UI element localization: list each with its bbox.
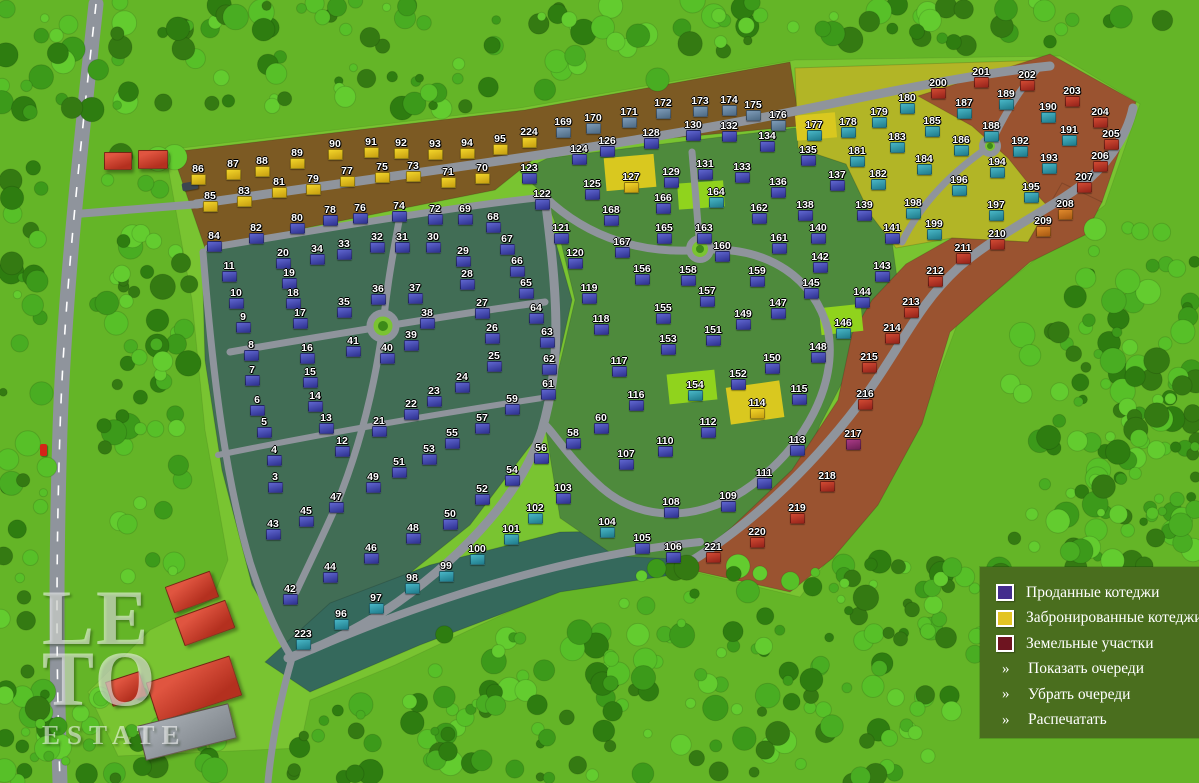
plot-house-116[interactable]: [629, 400, 644, 411]
plot-house-211[interactable]: [956, 253, 971, 264]
plot-house-159[interactable]: [750, 276, 765, 287]
plot-number-91[interactable]: 91: [365, 137, 377, 148]
plot-number-46[interactable]: 46: [365, 543, 377, 554]
plot-number-41[interactable]: 41: [347, 336, 359, 347]
plot-house-14[interactable]: [308, 401, 323, 412]
plot-number-162[interactable]: 162: [750, 203, 768, 214]
plot-number-31[interactable]: 31: [396, 232, 408, 243]
plot-number-24[interactable]: 24: [456, 372, 468, 383]
plot-house-162[interactable]: [752, 213, 767, 224]
plot-house-111[interactable]: [757, 478, 772, 489]
plot-number-187[interactable]: 187: [955, 98, 973, 109]
plot-number-32[interactable]: 32: [371, 232, 383, 243]
plot-number-9[interactable]: 9: [240, 312, 246, 323]
plot-house-110[interactable]: [658, 446, 673, 457]
plot-number-114[interactable]: 114: [749, 398, 766, 409]
plot-house-22[interactable]: [404, 409, 419, 420]
plot-number-105[interactable]: 105: [633, 533, 651, 544]
plot-number-71[interactable]: 71: [442, 167, 454, 178]
plot-house-158[interactable]: [681, 275, 696, 286]
plot-number-93[interactable]: 93: [429, 139, 441, 150]
plot-number-13[interactable]: 13: [320, 413, 332, 424]
plot-number-25[interactable]: 25: [488, 351, 500, 362]
plot-house-166[interactable]: [656, 203, 671, 214]
plot-house-73[interactable]: [406, 171, 421, 182]
plot-number-6[interactable]: 6: [254, 395, 260, 406]
plot-number-99[interactable]: 99: [440, 561, 452, 572]
plot-house-33[interactable]: [337, 249, 352, 260]
plot-number-132[interactable]: 132: [720, 121, 738, 132]
hide-queues-button[interactable]: » Убрать очереди: [996, 682, 1199, 708]
plot-number-81[interactable]: 81: [273, 177, 285, 188]
plot-house-58[interactable]: [566, 438, 581, 449]
plot-number-192[interactable]: 192: [1011, 136, 1029, 147]
plot-house-75[interactable]: [375, 172, 390, 183]
plot-number-36[interactable]: 36: [372, 284, 384, 295]
plot-number-197[interactable]: 197: [987, 200, 1005, 211]
plot-number-76[interactable]: 76: [354, 203, 366, 214]
plot-house-32[interactable]: [370, 242, 385, 253]
plot-number-45[interactable]: 45: [300, 506, 312, 517]
plot-house-126[interactable]: [600, 146, 615, 157]
plot-house-105[interactable]: [635, 543, 650, 554]
plot-number-223[interactable]: 223: [294, 629, 312, 640]
plot-number-194[interactable]: 194: [988, 157, 1006, 168]
plot-house-188[interactable]: [984, 131, 999, 142]
plot-house-215[interactable]: [862, 362, 877, 373]
plot-house-95[interactable]: [493, 144, 508, 155]
plot-house-157[interactable]: [700, 296, 715, 307]
plot-house-91[interactable]: [364, 147, 379, 158]
plot-house-184[interactable]: [917, 164, 932, 175]
plot-house-131[interactable]: [698, 169, 713, 180]
plot-house-170[interactable]: [586, 123, 601, 134]
plot-house-164[interactable]: [709, 197, 724, 208]
plot-number-205[interactable]: 205: [1102, 129, 1120, 140]
plot-number-51[interactable]: 51: [393, 457, 405, 468]
plot-number-175[interactable]: 175: [744, 100, 762, 111]
plot-number-163[interactable]: 163: [695, 223, 713, 234]
plot-number-101[interactable]: 101: [502, 524, 520, 535]
plot-number-90[interactable]: 90: [329, 139, 341, 150]
plot-number-49[interactable]: 49: [367, 472, 379, 483]
plot-number-186[interactable]: 186: [952, 135, 970, 146]
plot-number-60[interactable]: 60: [595, 413, 607, 424]
plot-number-215[interactable]: 215: [860, 352, 878, 363]
plot-house-127[interactable]: [624, 182, 639, 193]
plot-number-73[interactable]: 73: [407, 161, 419, 172]
plot-house-150[interactable]: [765, 363, 780, 374]
plot-number-38[interactable]: 38: [421, 308, 433, 319]
plot-house-24[interactable]: [455, 382, 470, 393]
plot-house-153[interactable]: [661, 344, 676, 355]
plot-house-100[interactable]: [470, 554, 485, 565]
plot-house-115[interactable]: [792, 394, 807, 405]
plot-house-120[interactable]: [568, 258, 583, 269]
plot-number-10[interactable]: 10: [230, 288, 242, 299]
plot-house-50[interactable]: [443, 519, 458, 530]
plot-number-62[interactable]: 62: [543, 354, 555, 365]
plot-number-224[interactable]: 224: [520, 127, 538, 138]
plot-number-176[interactable]: 176: [769, 110, 787, 121]
plot-number-188[interactable]: 188: [982, 121, 1000, 132]
plot-house-8[interactable]: [244, 350, 259, 361]
plot-house-132[interactable]: [722, 131, 737, 142]
plot-house-47[interactable]: [329, 502, 344, 513]
plot-house-216[interactable]: [858, 399, 873, 410]
plot-number-94[interactable]: 94: [461, 138, 473, 149]
plot-house-6[interactable]: [250, 405, 265, 416]
plot-number-22[interactable]: 22: [405, 399, 417, 410]
plot-number-151[interactable]: 151: [704, 325, 722, 336]
plot-house-55[interactable]: [445, 438, 460, 449]
plot-number-125[interactable]: 125: [583, 179, 601, 190]
plot-number-219[interactable]: 219: [788, 503, 806, 514]
plot-house-61[interactable]: [541, 389, 556, 400]
plot-number-100[interactable]: 100: [468, 544, 486, 555]
plot-number-177[interactable]: 177: [805, 120, 823, 131]
plot-number-86[interactable]: 86: [192, 164, 204, 175]
plot-number-201[interactable]: 201: [972, 67, 990, 78]
plot-number-42[interactable]: 42: [284, 584, 296, 595]
plot-house-28[interactable]: [460, 279, 475, 290]
plot-number-37[interactable]: 37: [409, 283, 421, 294]
plot-house-203[interactable]: [1065, 96, 1080, 107]
plot-number-171[interactable]: 171: [620, 107, 638, 118]
plot-number-28[interactable]: 28: [461, 269, 473, 280]
plot-number-211[interactable]: 211: [955, 243, 972, 254]
plot-number-14[interactable]: 14: [309, 391, 321, 402]
plot-number-118[interactable]: 118: [593, 314, 610, 325]
plot-number-220[interactable]: 220: [748, 527, 766, 538]
plot-number-54[interactable]: 54: [506, 465, 518, 476]
plot-number-170[interactable]: 170: [584, 113, 602, 124]
plot-number-74[interactable]: 74: [393, 201, 405, 212]
plot-house-77[interactable]: [340, 176, 355, 187]
plot-number-128[interactable]: 128: [642, 128, 660, 139]
plot-number-124[interactable]: 124: [570, 144, 588, 155]
plot-house-224[interactable]: [522, 137, 537, 148]
plot-house-122[interactable]: [535, 199, 550, 210]
plot-house-199[interactable]: [927, 229, 942, 240]
plot-house-89[interactable]: [290, 158, 305, 169]
plot-number-141[interactable]: 141: [883, 223, 901, 234]
plot-house-169[interactable]: [556, 127, 571, 138]
plot-house-174[interactable]: [722, 105, 737, 116]
plot-number-57[interactable]: 57: [476, 413, 488, 424]
plot-number-7[interactable]: 7: [249, 365, 255, 376]
plot-number-5[interactable]: 5: [261, 417, 267, 428]
plot-number-180[interactable]: 180: [898, 93, 916, 104]
plot-house-151[interactable]: [706, 335, 721, 346]
plot-house-57[interactable]: [475, 423, 490, 434]
plot-number-66[interactable]: 66: [511, 256, 523, 267]
plot-house-205[interactable]: [1104, 139, 1119, 150]
plot-house-60[interactable]: [594, 423, 609, 434]
plot-house-112[interactable]: [701, 427, 716, 438]
plot-number-39[interactable]: 39: [405, 330, 417, 341]
plot-house-72[interactable]: [428, 214, 443, 225]
plot-house-139[interactable]: [857, 210, 872, 221]
plot-number-26[interactable]: 26: [486, 323, 498, 334]
plot-house-193[interactable]: [1042, 163, 1057, 174]
plot-number-182[interactable]: 182: [869, 169, 887, 180]
plot-number-95[interactable]: 95: [494, 134, 506, 145]
plot-house-106[interactable]: [666, 552, 681, 563]
plot-number-172[interactable]: 172: [654, 98, 672, 109]
plot-number-89[interactable]: 89: [291, 148, 303, 159]
plot-house-136[interactable]: [771, 187, 786, 198]
plot-house-108[interactable]: [664, 507, 679, 518]
plot-house-219[interactable]: [790, 513, 805, 524]
plot-number-208[interactable]: 208: [1056, 199, 1074, 210]
plot-number-50[interactable]: 50: [444, 509, 456, 520]
plot-number-106[interactable]: 106: [664, 542, 682, 553]
plot-number-123[interactable]: 123: [520, 163, 538, 174]
plot-number-131[interactable]: 131: [696, 159, 714, 170]
plot-number-168[interactable]: 168: [602, 205, 620, 216]
plot-number-72[interactable]: 72: [429, 204, 441, 215]
plot-house-134[interactable]: [760, 141, 775, 152]
plot-house-154[interactable]: [688, 390, 703, 401]
plot-number-65[interactable]: 65: [520, 278, 532, 289]
plot-number-207[interactable]: 207: [1075, 172, 1093, 183]
plot-number-161[interactable]: 161: [770, 233, 788, 244]
plot-number-191[interactable]: 191: [1060, 125, 1078, 136]
plot-house-177[interactable]: [807, 130, 822, 141]
plot-house-51[interactable]: [392, 467, 407, 478]
plot-house-172[interactable]: [656, 108, 671, 119]
plot-number-195[interactable]: 195: [1022, 182, 1040, 193]
plot-house-190[interactable]: [1041, 112, 1056, 123]
plot-number-104[interactable]: 104: [598, 517, 616, 528]
plot-house-189[interactable]: [999, 99, 1014, 110]
plot-number-140[interactable]: 140: [809, 223, 827, 234]
plot-house-38[interactable]: [420, 318, 435, 329]
plot-house-29[interactable]: [456, 256, 471, 267]
plot-house-68[interactable]: [486, 222, 501, 233]
plot-house-67[interactable]: [500, 244, 515, 255]
plot-house-36[interactable]: [371, 294, 386, 305]
plot-number-119[interactable]: 119: [581, 283, 598, 294]
plot-number-204[interactable]: 204: [1091, 107, 1109, 118]
plot-house-45[interactable]: [299, 516, 314, 527]
plot-number-80[interactable]: 80: [291, 213, 303, 224]
plot-house-201[interactable]: [974, 77, 989, 88]
plot-house-171[interactable]: [622, 117, 637, 128]
plot-number-193[interactable]: 193: [1040, 153, 1058, 164]
plot-house-178[interactable]: [841, 127, 856, 138]
plot-number-214[interactable]: 214: [883, 323, 901, 334]
plot-house-209[interactable]: [1036, 226, 1051, 237]
plot-house-101[interactable]: [504, 534, 519, 545]
plot-number-133[interactable]: 133: [733, 162, 751, 173]
plot-number-145[interactable]: 145: [802, 278, 820, 289]
plot-number-146[interactable]: 146: [834, 318, 852, 329]
plot-house-97[interactable]: [369, 603, 384, 614]
plot-number-157[interactable]: 157: [698, 286, 716, 297]
plot-house-25[interactable]: [487, 361, 502, 372]
plot-house-26[interactable]: [485, 333, 500, 344]
plot-number-87[interactable]: 87: [227, 159, 239, 170]
plot-house-59[interactable]: [505, 404, 520, 415]
plot-number-16[interactable]: 16: [301, 343, 313, 354]
plot-house-64[interactable]: [529, 313, 544, 324]
plot-number-82[interactable]: 82: [250, 223, 262, 234]
plot-number-158[interactable]: 158: [679, 265, 697, 276]
plot-house-15[interactable]: [303, 377, 318, 388]
plot-house-192[interactable]: [1013, 146, 1028, 157]
plot-house-186[interactable]: [954, 145, 969, 156]
plot-number-135[interactable]: 135: [799, 145, 817, 156]
plot-number-189[interactable]: 189: [997, 89, 1015, 100]
plot-house-93[interactable]: [428, 149, 443, 160]
plot-number-68[interactable]: 68: [487, 212, 499, 223]
plot-number-218[interactable]: 218: [818, 471, 836, 482]
plot-number-109[interactable]: 109: [719, 491, 737, 502]
plot-number-111[interactable]: 111: [756, 468, 772, 479]
print-button[interactable]: » Распечатать: [996, 708, 1199, 734]
plot-number-174[interactable]: 174: [720, 95, 738, 106]
plot-house-167[interactable]: [615, 247, 630, 258]
plot-number-153[interactable]: 153: [659, 334, 677, 345]
plot-house-161[interactable]: [772, 243, 787, 254]
plot-house-137[interactable]: [830, 180, 845, 191]
plot-house-194[interactable]: [990, 167, 1005, 178]
plot-number-27[interactable]: 27: [476, 298, 488, 309]
plot-number-206[interactable]: 206: [1091, 151, 1109, 162]
plot-house-74[interactable]: [392, 211, 407, 222]
plot-house-81[interactable]: [272, 187, 287, 198]
plot-house-145[interactable]: [804, 288, 819, 299]
plot-number-3[interactable]: 3: [272, 472, 278, 483]
plot-house-53[interactable]: [422, 454, 437, 465]
plot-house-133[interactable]: [735, 172, 750, 183]
plot-house-3[interactable]: [268, 482, 283, 493]
plot-house-92[interactable]: [394, 148, 409, 159]
plot-number-143[interactable]: 143: [873, 261, 891, 272]
plot-house-123[interactable]: [522, 173, 537, 184]
plot-number-115[interactable]: 115: [791, 384, 808, 395]
plot-house-87[interactable]: [226, 169, 241, 180]
plot-number-181[interactable]: 181: [848, 146, 866, 157]
plot-number-190[interactable]: 190: [1039, 102, 1057, 113]
plot-number-21[interactable]: 21: [373, 416, 385, 427]
plot-house-175[interactable]: [746, 110, 761, 121]
plot-house-109[interactable]: [721, 501, 736, 512]
plot-number-127[interactable]: 127: [622, 172, 640, 183]
plot-house-135[interactable]: [801, 155, 816, 166]
plot-number-167[interactable]: 167: [613, 237, 631, 248]
plot-number-103[interactable]: 103: [554, 483, 572, 494]
plot-number-61[interactable]: 61: [542, 379, 554, 390]
plot-house-83[interactable]: [237, 196, 252, 207]
plot-house-82[interactable]: [249, 233, 264, 244]
plot-number-213[interactable]: 213: [902, 297, 920, 308]
plot-number-221[interactable]: 221: [704, 542, 722, 553]
plot-house-179[interactable]: [872, 117, 887, 128]
plot-house-66[interactable]: [510, 266, 525, 277]
plot-number-63[interactable]: 63: [541, 327, 553, 338]
plot-number-185[interactable]: 185: [923, 116, 941, 127]
plot-house-31[interactable]: [395, 242, 410, 253]
plot-house-10[interactable]: [229, 298, 244, 309]
plot-number-110[interactable]: 110: [657, 436, 674, 447]
plot-house-121[interactable]: [554, 233, 569, 244]
plot-house-48[interactable]: [406, 533, 421, 544]
plot-number-179[interactable]: 179: [870, 107, 888, 118]
plot-house-70[interactable]: [475, 173, 490, 184]
plot-number-70[interactable]: 70: [476, 163, 488, 174]
plot-house-138[interactable]: [798, 210, 813, 221]
plot-house-5[interactable]: [257, 427, 272, 438]
plot-number-216[interactable]: 216: [856, 389, 874, 400]
plot-house-223[interactable]: [296, 639, 311, 650]
plot-number-184[interactable]: 184: [915, 154, 933, 165]
plot-house-130[interactable]: [686, 130, 701, 141]
plot-number-56[interactable]: 56: [535, 443, 547, 454]
plot-house-152[interactable]: [731, 379, 746, 390]
plot-house-208[interactable]: [1058, 209, 1073, 220]
plot-house-124[interactable]: [572, 154, 587, 165]
plot-house-86[interactable]: [191, 174, 206, 185]
plot-number-120[interactable]: 120: [566, 248, 584, 259]
plot-number-144[interactable]: 144: [853, 287, 871, 298]
plot-house-12[interactable]: [335, 446, 350, 457]
plot-house-23[interactable]: [427, 396, 442, 407]
plot-house-206[interactable]: [1093, 161, 1108, 172]
plot-house-27[interactable]: [475, 308, 490, 319]
plot-number-113[interactable]: 113: [789, 435, 806, 446]
plot-house-104[interactable]: [600, 527, 615, 538]
plot-house-52[interactable]: [475, 494, 490, 505]
plot-number-18[interactable]: 18: [287, 288, 299, 299]
plot-house-191[interactable]: [1062, 135, 1077, 146]
plot-number-98[interactable]: 98: [406, 573, 418, 584]
plot-number-138[interactable]: 138: [796, 200, 814, 211]
plot-number-165[interactable]: 165: [655, 223, 673, 234]
plot-number-200[interactable]: 200: [929, 78, 947, 89]
plot-number-11[interactable]: 11: [223, 261, 234, 272]
plot-number-40[interactable]: 40: [381, 343, 393, 354]
plot-house-46[interactable]: [364, 553, 379, 564]
plot-house-63[interactable]: [540, 337, 555, 348]
plot-number-59[interactable]: 59: [506, 394, 518, 405]
plot-house-142[interactable]: [813, 262, 828, 273]
plot-house-85[interactable]: [203, 201, 218, 212]
plot-number-203[interactable]: 203: [1063, 86, 1081, 97]
plot-house-94[interactable]: [460, 148, 475, 159]
plot-number-20[interactable]: 20: [277, 248, 289, 259]
plot-house-40[interactable]: [380, 353, 395, 364]
plot-house-98[interactable]: [405, 583, 420, 594]
plot-house-78[interactable]: [323, 215, 338, 226]
plot-number-8[interactable]: 8: [248, 340, 254, 351]
plot-number-166[interactable]: 166: [654, 193, 672, 204]
plot-house-220[interactable]: [750, 537, 765, 548]
plot-number-199[interactable]: 199: [925, 219, 943, 230]
plot-number-84[interactable]: 84: [208, 231, 220, 242]
plot-house-160[interactable]: [715, 251, 730, 262]
plot-house-195[interactable]: [1024, 192, 1039, 203]
plot-number-116[interactable]: 116: [628, 390, 645, 401]
plot-house-202[interactable]: [1020, 80, 1035, 91]
plot-number-102[interactable]: 102: [526, 503, 544, 514]
plot-house-42[interactable]: [283, 594, 298, 605]
plot-number-156[interactable]: 156: [633, 264, 651, 275]
plot-number-217[interactable]: 217: [844, 429, 862, 440]
plot-house-214[interactable]: [885, 333, 900, 344]
